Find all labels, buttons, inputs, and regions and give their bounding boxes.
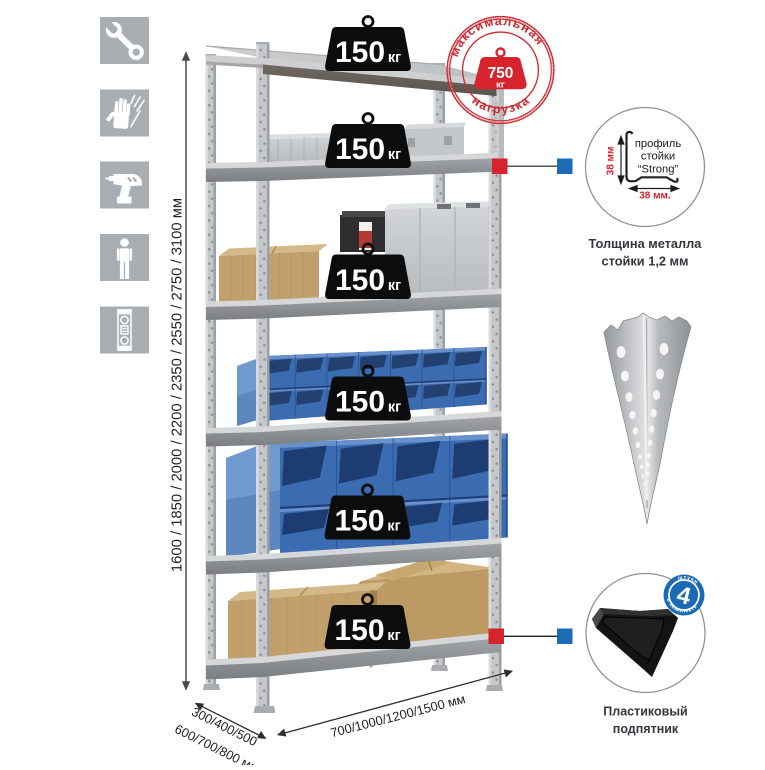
svg-text:“Strong”: “Strong” [638,164,679,176]
svg-text:150: 150 [334,614,384,647]
svg-text:150: 150 [335,386,385,419]
svg-text:150: 150 [334,505,384,538]
svg-text:150: 150 [335,36,385,69]
svg-text:38 мм.: 38 мм. [639,191,671,202]
svg-text:38 мм: 38 мм [606,147,617,176]
svg-text:кг: кг [388,147,401,163]
svg-text:Пластиковый: Пластиковый [603,705,687,719]
svg-text:Толщина металла: Толщина металла [589,236,703,251]
svg-text:кг: кг [388,50,401,66]
svg-text:кг: кг [388,400,401,416]
svg-text:кг: кг [496,80,505,91]
svg-text:стойки: стойки [641,151,675,163]
svg-text:кг: кг [387,628,400,644]
svg-text:профиль: профиль [635,138,681,150]
svg-text:150: 150 [335,264,385,297]
svg-text:1600 / 1850 / 2000 / 2200 / 23: 1600 / 1850 / 2000 / 2200 / 2350 / 2550 … [170,198,186,572]
svg-text:кг: кг [388,278,401,294]
svg-text:кг: кг [387,519,400,535]
svg-text:стойки 1,2 мм: стойки 1,2 мм [601,254,688,269]
svg-text:подпятник: подпятник [613,722,679,736]
svg-text:150: 150 [335,133,385,166]
